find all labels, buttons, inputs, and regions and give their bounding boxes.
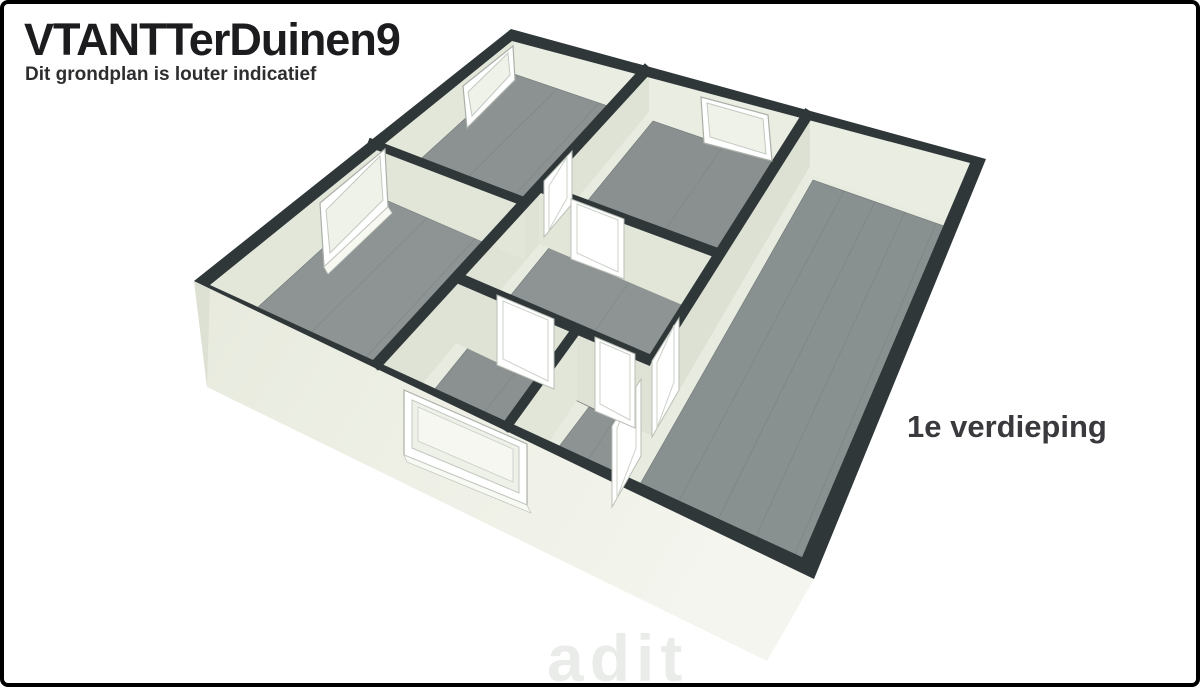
- page-subtitle: Dit grondplan is louter indicatief: [25, 64, 316, 86]
- watermark: adit: [547, 620, 688, 687]
- floorplan-3d: [4, 4, 1200, 687]
- page-title: VTANTTerDuinen9: [24, 14, 400, 66]
- page: VTANTTerDuinen9 Dit grondplan is louter …: [0, 0, 1200, 687]
- floor-label: 1e verdieping: [907, 409, 1107, 445]
